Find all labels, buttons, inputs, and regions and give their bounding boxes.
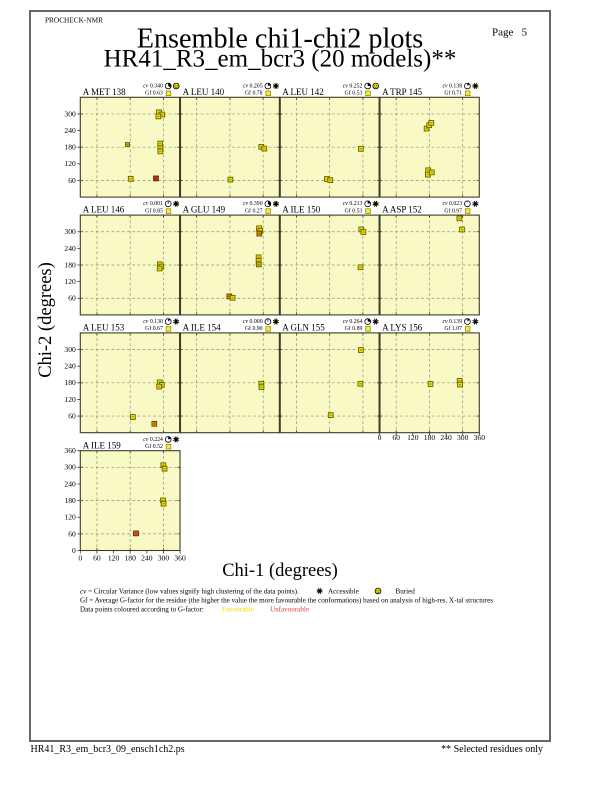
svg-text:A LEU 140: A LEU 140 xyxy=(183,87,225,97)
svg-text:Gf = Average G-factor for the: Gf = Average G-factor for the residue (t… xyxy=(80,597,493,605)
svg-text:60: 60 xyxy=(68,294,76,303)
svg-text:180: 180 xyxy=(64,496,76,505)
svg-text:A TRP 145: A TRP 145 xyxy=(382,87,423,97)
svg-text:180: 180 xyxy=(64,143,76,152)
svg-text:Gf 0.90: Gf 0.90 xyxy=(245,325,263,332)
svg-text:300: 300 xyxy=(64,345,76,354)
svg-text:A MET 138: A MET 138 xyxy=(83,87,126,97)
svg-text:Gf 0.71: Gf 0.71 xyxy=(444,90,462,97)
svg-text:cv 0.139: cv 0.139 xyxy=(442,319,462,325)
svg-text:Unfavourable: Unfavourable xyxy=(270,606,309,614)
svg-text:Gf 0.53: Gf 0.53 xyxy=(345,90,363,97)
svg-text:Data points coloured according: Data points coloured according to G-fact… xyxy=(80,606,204,614)
svg-text:60: 60 xyxy=(93,554,101,563)
svg-text:cv 0.001: cv 0.001 xyxy=(143,201,163,207)
svg-text:300: 300 xyxy=(64,109,76,118)
svg-text:PROCHECK-NMR: PROCHECK-NMR xyxy=(45,15,103,24)
svg-text:A GLU 149: A GLU 149 xyxy=(183,205,226,215)
svg-text:Gf 0.97: Gf 0.97 xyxy=(444,207,462,214)
svg-text:Chi-2 (degrees): Chi-2 (degrees) xyxy=(36,262,56,378)
svg-text:300: 300 xyxy=(64,227,76,236)
svg-text:A LEU 142: A LEU 142 xyxy=(282,87,324,97)
svg-text:Gf 0.53: Gf 0.53 xyxy=(345,207,363,214)
svg-text:Gf 1.07: Gf 1.07 xyxy=(444,325,462,332)
svg-text:180: 180 xyxy=(64,378,76,387)
svg-text:60: 60 xyxy=(68,411,76,420)
svg-text:240: 240 xyxy=(64,126,76,135)
svg-text:A GLN 155: A GLN 155 xyxy=(282,323,325,333)
svg-text:Gf 0.67: Gf 0.67 xyxy=(145,325,163,332)
svg-text:A LEU 146: A LEU 146 xyxy=(83,205,125,215)
svg-text:cv 0.213: cv 0.213 xyxy=(343,201,363,207)
svg-text:cv 0.130: cv 0.130 xyxy=(143,319,163,325)
svg-text:Gf 0.52: Gf 0.52 xyxy=(145,443,163,450)
svg-text:0: 0 xyxy=(72,546,76,555)
svg-text:Buried: Buried xyxy=(396,588,416,596)
svg-text:cv 0.224: cv 0.224 xyxy=(143,437,163,443)
svg-text:cv 0.340: cv 0.340 xyxy=(143,83,163,89)
svg-text:A ASP 152: A ASP 152 xyxy=(382,205,422,215)
svg-text:120: 120 xyxy=(64,159,76,168)
svg-text:HR41_R3_em_bcr3 (20 models)**: HR41_R3_em_bcr3 (20 models)** xyxy=(104,46,457,73)
svg-text:300: 300 xyxy=(64,463,76,472)
svg-text:Gf 0.85: Gf 0.85 xyxy=(145,207,163,214)
svg-text:0: 0 xyxy=(78,554,82,563)
svg-text:360: 360 xyxy=(64,446,76,455)
svg-text:120: 120 xyxy=(64,277,76,286)
svg-text:cv = Circular Variance (low va: cv = Circular Variance (low values signi… xyxy=(80,588,299,596)
svg-text:A ILE 150: A ILE 150 xyxy=(282,205,320,215)
svg-text:cv 0.000: cv 0.000 xyxy=(243,319,263,325)
svg-text:60: 60 xyxy=(68,529,76,538)
svg-text:240: 240 xyxy=(64,362,76,371)
svg-text:180: 180 xyxy=(124,554,136,563)
svg-text:A ILE 154: A ILE 154 xyxy=(183,323,221,333)
svg-text:120: 120 xyxy=(108,554,120,563)
svg-text:cv 0.023: cv 0.023 xyxy=(442,201,462,207)
svg-text:cv 0.390: cv 0.390 xyxy=(243,201,263,207)
svg-text:360: 360 xyxy=(174,554,186,563)
svg-text:A LEU 153: A LEU 153 xyxy=(83,323,125,333)
svg-text:Gf 0.27: Gf 0.27 xyxy=(245,207,263,214)
svg-text:240: 240 xyxy=(64,479,76,488)
svg-text:300: 300 xyxy=(158,554,170,563)
svg-text:Favourable: Favourable xyxy=(222,606,254,614)
svg-text:cv 0.264: cv 0.264 xyxy=(343,319,363,325)
svg-text:cv 0.252: cv 0.252 xyxy=(343,83,363,89)
svg-text:Accessible: Accessible xyxy=(328,588,359,596)
svg-text:A LYS 156: A LYS 156 xyxy=(382,323,423,333)
svg-text:240: 240 xyxy=(141,554,153,563)
svg-text:180: 180 xyxy=(64,260,76,269)
svg-text:60: 60 xyxy=(68,176,76,185)
svg-text:Gf 0.78: Gf 0.78 xyxy=(245,90,263,97)
svg-text:** Selected residues only: ** Selected residues only xyxy=(441,744,543,755)
svg-text:240: 240 xyxy=(64,244,76,253)
svg-text:HR41_R3_em_bcr3_09_ensch1ch2.p: HR41_R3_em_bcr3_09_ensch1ch2.ps xyxy=(31,744,185,755)
svg-text:A ILE 159: A ILE 159 xyxy=(83,440,121,450)
svg-text:Gf 0.63: Gf 0.63 xyxy=(145,90,163,97)
svg-text:Page 5: Page 5 xyxy=(492,27,528,39)
svg-text:Gf 0.89: Gf 0.89 xyxy=(345,325,363,332)
svg-text:120: 120 xyxy=(64,513,76,522)
svg-text:Chi-1 (degrees): Chi-1 (degrees) xyxy=(222,561,338,581)
svg-text:120: 120 xyxy=(64,395,76,404)
svg-text:cv 0.205: cv 0.205 xyxy=(243,83,263,89)
svg-text:cv 0.138: cv 0.138 xyxy=(442,83,462,89)
